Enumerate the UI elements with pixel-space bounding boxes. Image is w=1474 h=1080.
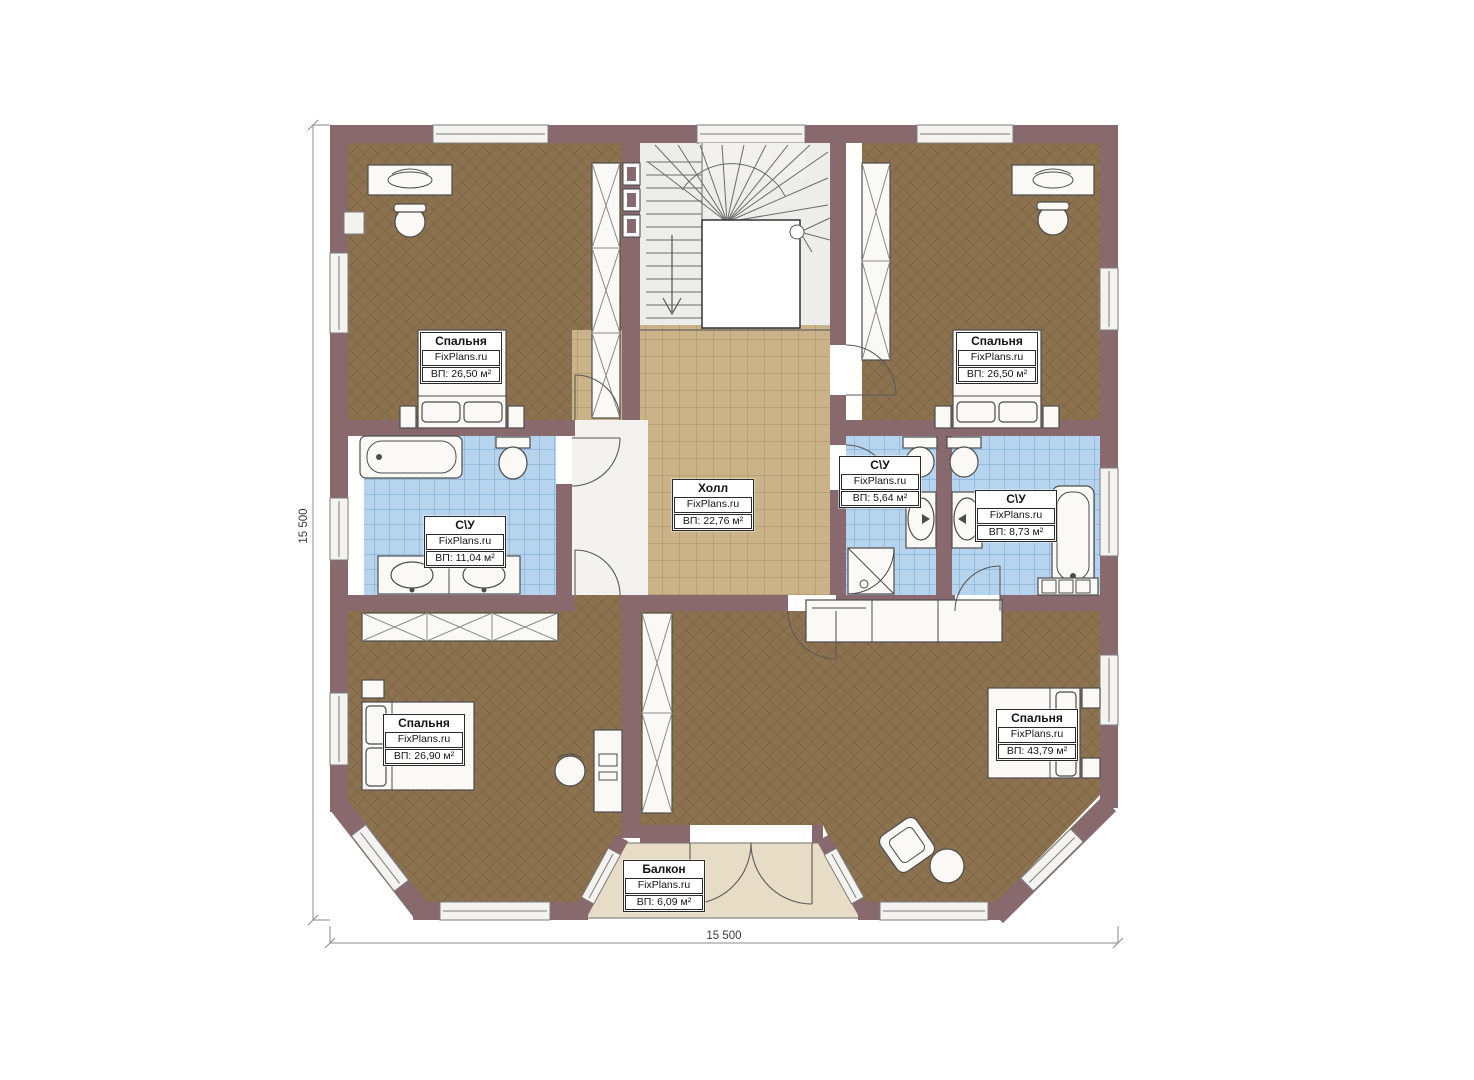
room-area: ВП: 6,09 м² (625, 895, 703, 911)
dimension-left: 15 500 (298, 120, 330, 925)
bathtub-icon (1052, 486, 1094, 586)
window-left-lower (330, 693, 348, 765)
room-name: С\У (977, 492, 1055, 507)
window-left-upper (330, 253, 348, 333)
bathroom-counter-icon (1038, 578, 1098, 595)
dresser-icon (368, 165, 452, 195)
watermark: FixPlans.ru (385, 732, 463, 748)
watermark: FixPlans.ru (977, 508, 1055, 524)
watermark: FixPlans.ru (841, 474, 919, 490)
window-top-right (917, 125, 1013, 143)
room-label-hall: Холл FixPlans.ru ВП: 22,76 м² (672, 479, 754, 531)
room-area: ВП: 11,04 м² (426, 551, 504, 567)
window-right-lower (1100, 655, 1118, 725)
room-name: Спальня (422, 334, 500, 349)
room-name: С\У (841, 458, 919, 473)
room-name: Холл (674, 481, 752, 496)
floor-plan-drawing: 15 500 15 500 (0, 0, 1474, 1080)
room-label-bedroom-bottom-right: Спальня FixPlans.ru ВП: 43,79 м² (996, 709, 1078, 761)
window-left-middle (330, 498, 348, 560)
dresser-icon (1012, 165, 1094, 195)
room-area: ВП: 26,50 м² (422, 367, 500, 383)
toilet-icon (947, 437, 981, 477)
room-area: ВП: 26,50 м² (958, 367, 1036, 383)
window-bottom-left (440, 902, 550, 920)
watermark: FixPlans.ru (674, 497, 752, 513)
room-label-bedroom-bottom-left: Спальня FixPlans.ru ВП: 26,90 м² (383, 714, 465, 766)
wardrobe-icon (862, 163, 890, 360)
watermark: FixPlans.ru (426, 534, 504, 550)
window-right-middle (1100, 468, 1118, 556)
watermark: FixPlans.ru (625, 878, 703, 894)
room-label-bedroom-top-left: Спальня FixPlans.ru ВП: 26,50 м² (420, 332, 502, 384)
hall-floor (640, 325, 830, 595)
vestibule-floor (572, 420, 648, 595)
balcony-floor (578, 843, 866, 918)
watermark: FixPlans.ru (998, 727, 1076, 743)
room-name: Спальня (958, 334, 1036, 349)
dimension-width-label: 15 500 (706, 930, 741, 942)
window-right-upper (1100, 268, 1118, 330)
room-label-bedroom-top-right: Спальня FixPlans.ru ВП: 26,50 м² (956, 332, 1038, 384)
bathtub-icon (360, 436, 462, 478)
wall-niche (344, 212, 364, 234)
window-bottom-right (880, 902, 988, 920)
floor-plan-canvas: 15 500 15 500 Спальня FixPlans.ru ВП: 26… (0, 0, 1474, 1080)
wardrobe-icon (362, 613, 558, 641)
stair-pole (790, 225, 804, 239)
room-name: Балкон (625, 862, 703, 877)
watermark: FixPlans.ru (958, 350, 1036, 366)
long-dresser-icon (806, 600, 1002, 642)
side-table-icon (930, 849, 964, 883)
room-name: Спальня (998, 711, 1076, 726)
room-label-bathroom-left: С\У FixPlans.ru ВП: 11,04 м² (424, 516, 506, 568)
room-label-bathroom-middle: С\У FixPlans.ru ВП: 5,64 м² (839, 456, 921, 508)
dimension-bottom: 15 500 (325, 926, 1123, 948)
room-name: С\У (426, 518, 504, 533)
stair-void (702, 220, 800, 328)
dimension-height-label: 15 500 (298, 508, 310, 543)
chair-icon (394, 204, 426, 237)
room-label-bathroom-right: С\У FixPlans.ru ВП: 8,73 м² (975, 490, 1057, 542)
chair-icon (1037, 202, 1069, 235)
room-name: Спальня (385, 716, 463, 731)
desk-icon (594, 730, 622, 812)
room-area: ВП: 8,73 м² (977, 525, 1055, 541)
window-top-left (433, 125, 548, 143)
watermark: FixPlans.ru (422, 350, 500, 366)
wardrobe-icon (642, 613, 672, 813)
room-area: ВП: 5,64 м² (841, 491, 919, 507)
window-top-center (697, 125, 805, 143)
shower-icon (848, 548, 894, 594)
duct-shafts (623, 163, 640, 237)
room-area: ВП: 43,79 м² (998, 744, 1076, 760)
room-label-balcony: Балкон FixPlans.ru ВП: 6,09 м² (623, 860, 705, 912)
room-area: ВП: 26,90 м² (385, 749, 463, 765)
room-area: ВП: 22,76 м² (674, 514, 752, 530)
